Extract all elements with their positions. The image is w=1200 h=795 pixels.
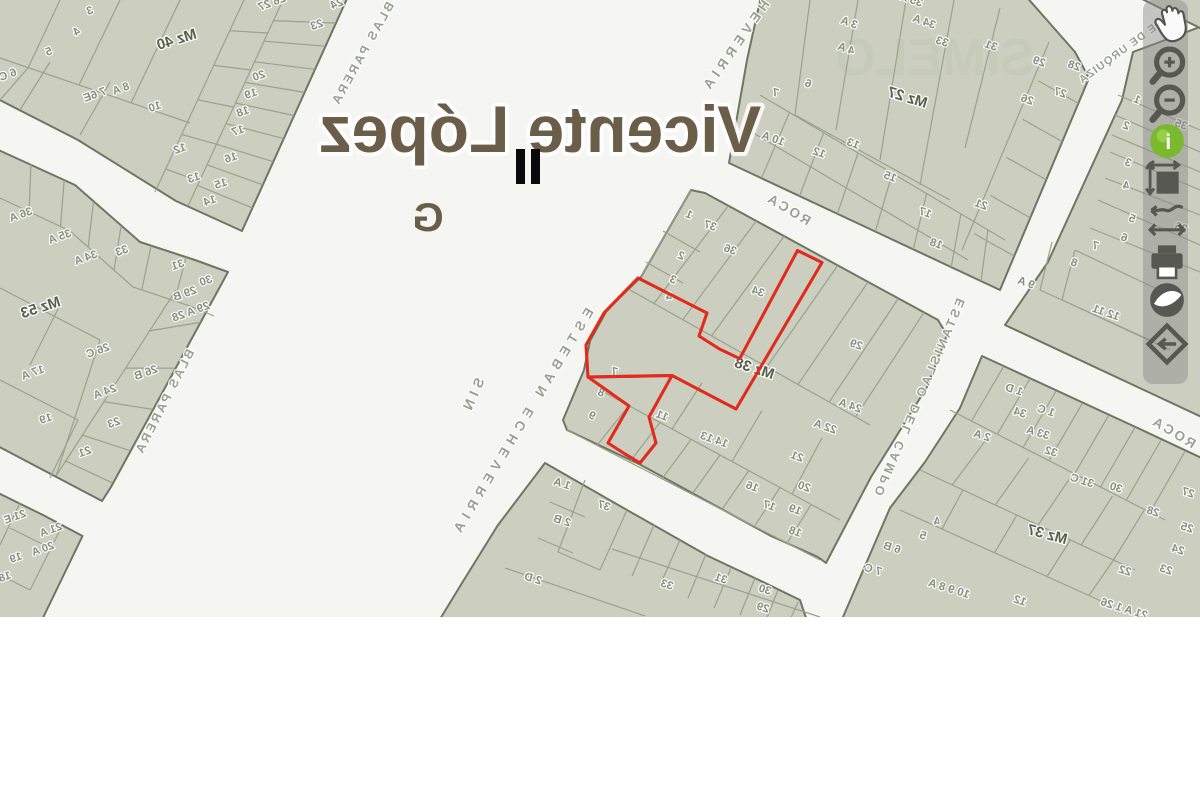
svg-text:SIMELO: SIMELO <box>835 29 1034 87</box>
svg-text:i: i <box>1165 131 1171 154</box>
svg-text:G: G <box>412 196 443 240</box>
